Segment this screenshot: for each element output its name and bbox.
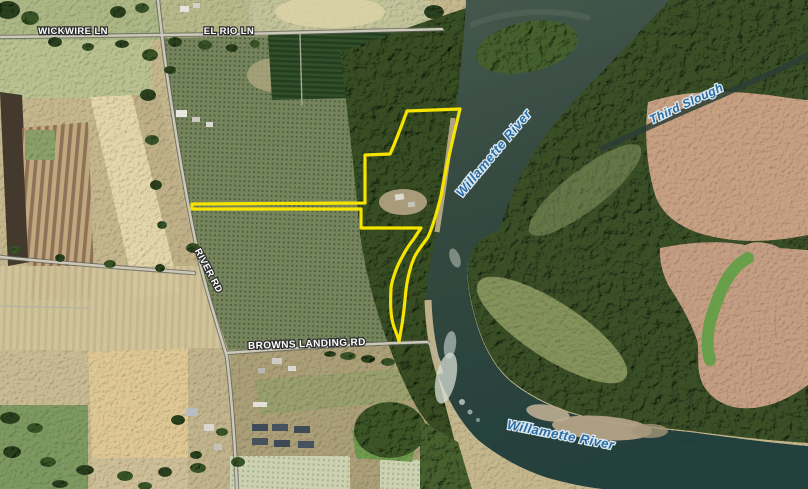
riverbend-forest	[354, 402, 426, 458]
el-rio-ln-label: EL RIO LN	[204, 26, 254, 37]
satellite-map-canvas[interactable]: WICKWIRE LN EL RIO LN RIVER RD BROWNS LA…	[0, 0, 808, 489]
wickwire-ln-label: WICKWIRE LN	[38, 26, 108, 37]
map-svg: WICKWIRE LN EL RIO LN RIVER RD BROWNS LA…	[0, 0, 808, 489]
